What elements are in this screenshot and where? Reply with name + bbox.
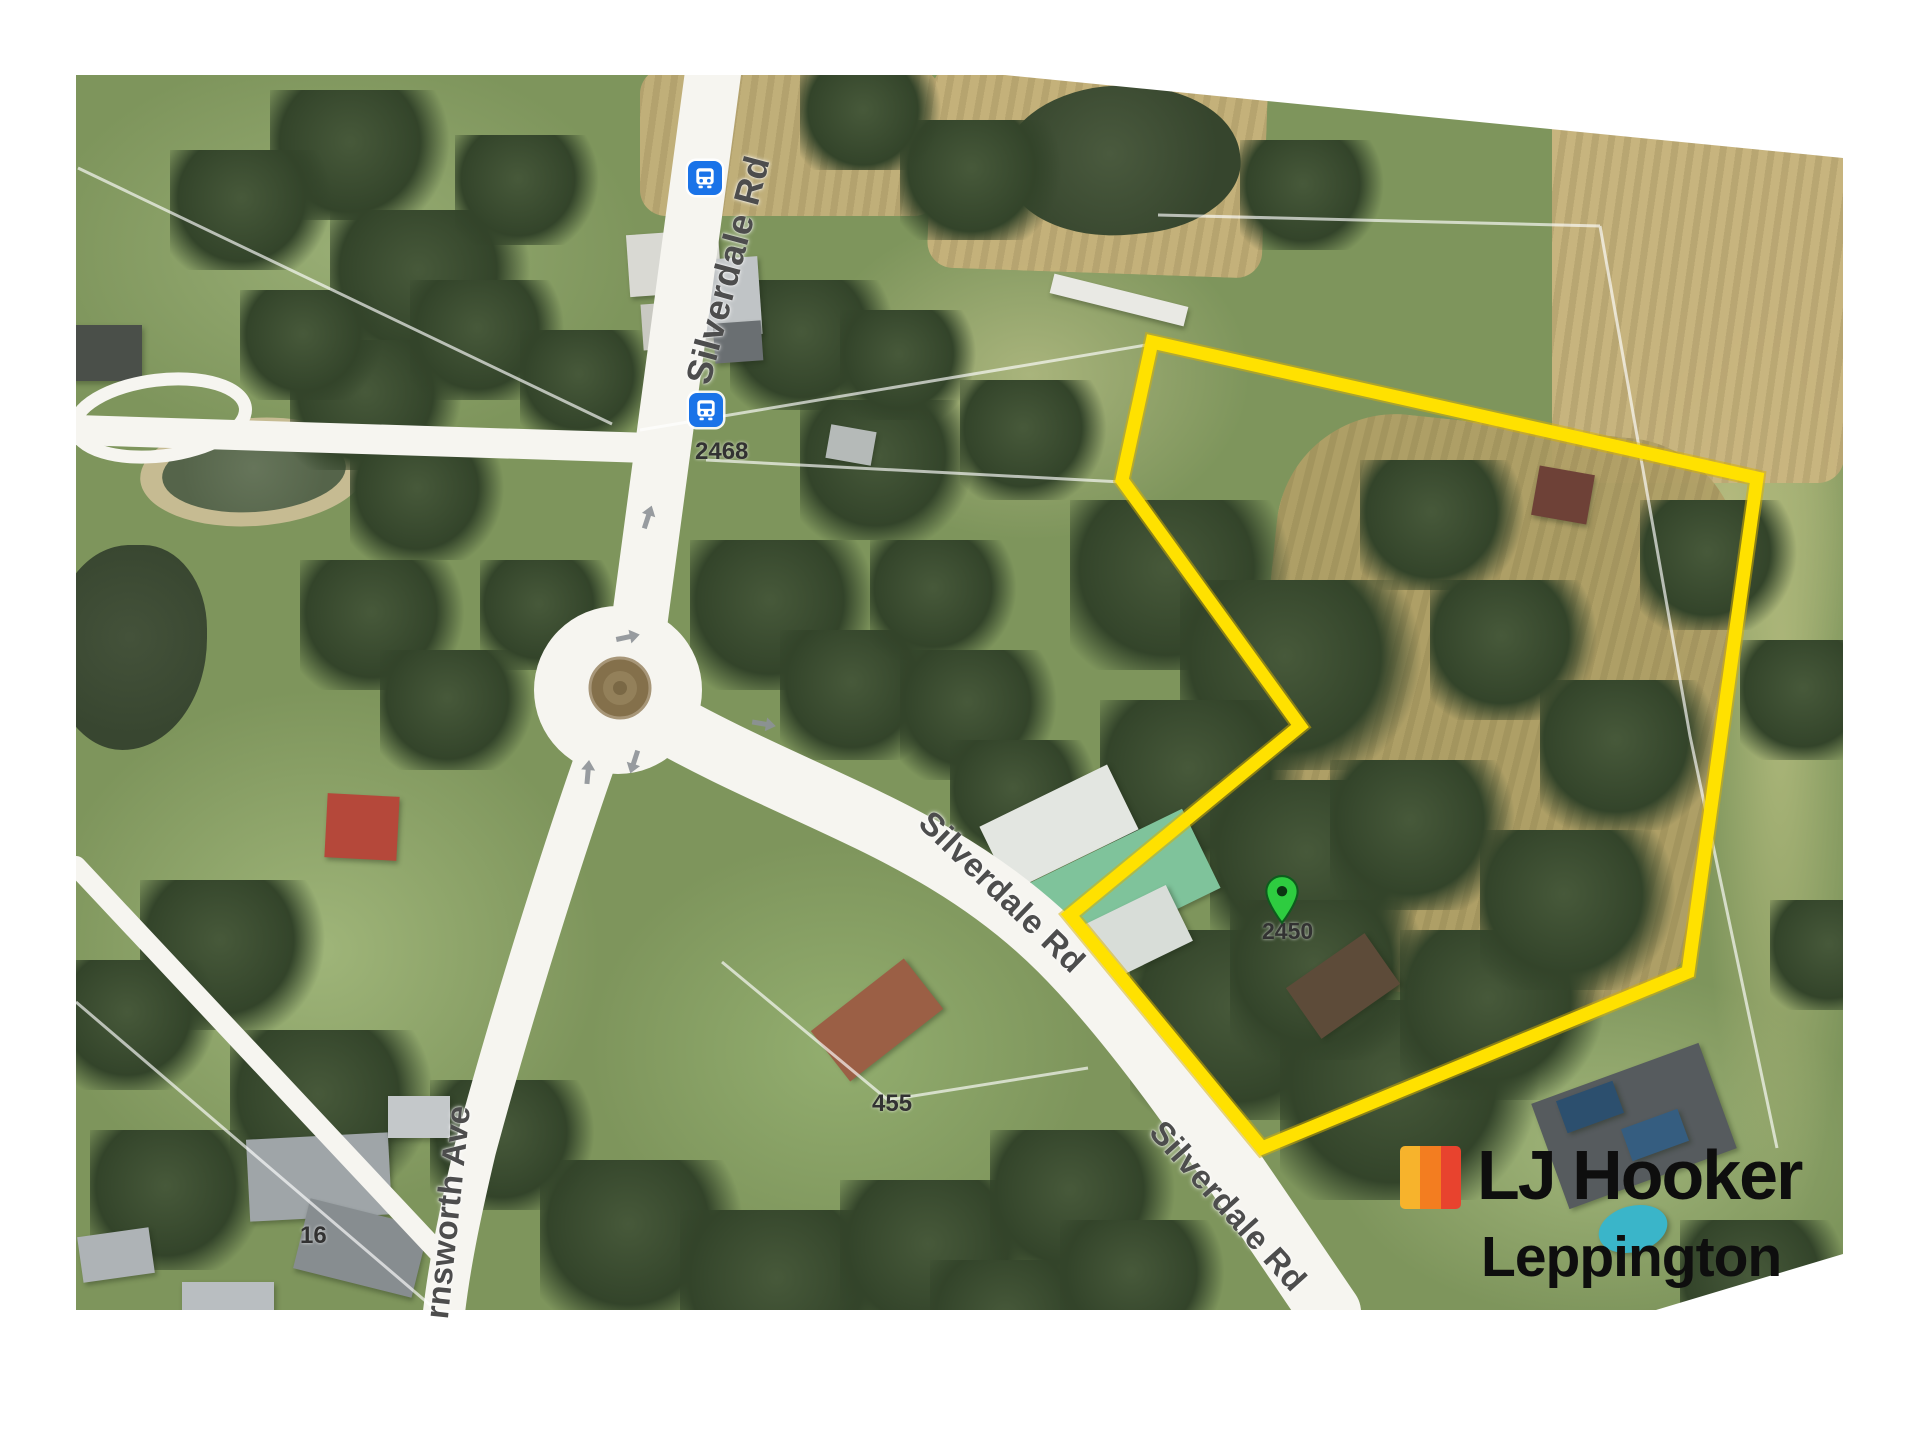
ljhooker-logo-icon [1400,1146,1461,1209]
logo-stripe [1400,1146,1420,1209]
lot-number-455: 455 [872,1090,912,1118]
page-margin-left [0,0,76,1440]
bus-stop-icon [689,393,723,427]
roundabout [534,606,702,774]
bus-stop-icon [688,161,722,195]
road-farnsworth [444,752,598,1312]
location-pin-icon [1263,875,1301,930]
logo-stripe [1420,1146,1440,1209]
aerial-map-page: Silverdale Rd Silverdale Rd Silverdale R… [0,0,1920,1440]
road-west [76,430,650,448]
brand-agency-name: LJ Hooker [1477,1135,1801,1215]
lot-number-16: 16 [300,1222,327,1250]
road-arrow-icon [751,715,777,733]
road-southwest [76,866,438,1252]
logo-stripe [1441,1146,1461,1209]
photo-edge-wedge [1005,75,1843,158]
property-boundary [1070,342,1757,1148]
page-margin-top [0,0,1920,75]
lot-number-2468: 2468 [695,438,748,466]
page-margin-bottom [0,1310,1920,1440]
page-margin-right [1843,0,1920,1440]
brand-office-name: Leppington [1481,1224,1781,1290]
